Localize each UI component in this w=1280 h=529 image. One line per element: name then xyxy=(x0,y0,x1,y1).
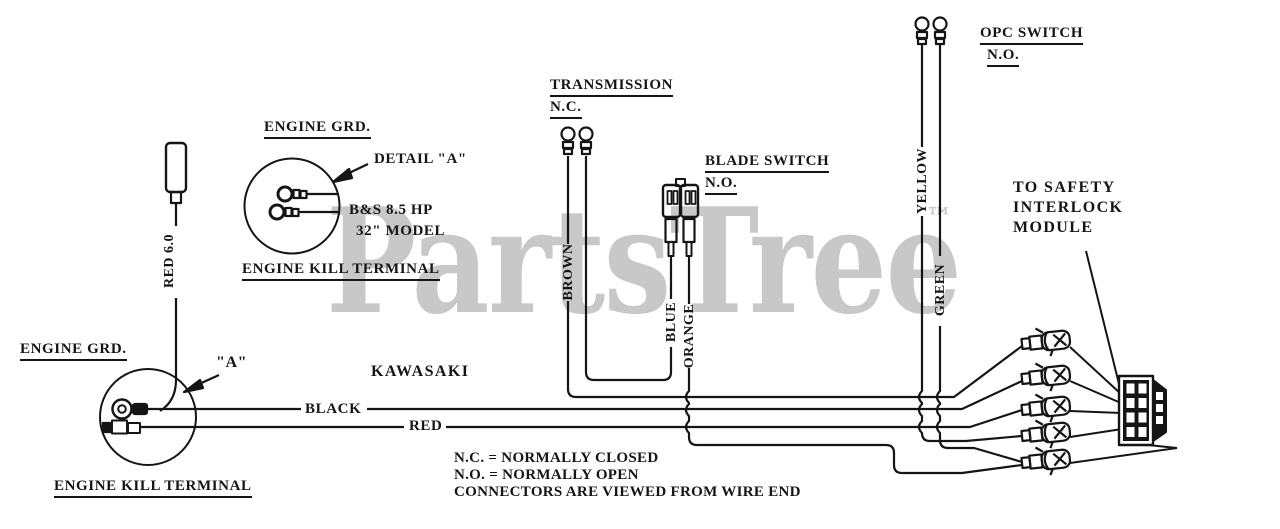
bullet-connector-icon xyxy=(166,143,186,203)
engine-ground-detail-circle xyxy=(245,159,340,254)
transmission-state-label: N.C. xyxy=(550,99,582,119)
blade-switch-state-label: N.O. xyxy=(705,175,737,195)
wire-blue xyxy=(586,156,671,380)
engine-grd-top-label: ENGINE GRD. xyxy=(264,119,371,139)
engine-kill-top-label: ENGINE KILL TERMINAL xyxy=(242,261,440,281)
note-connectors: CONNECTORS ARE VIEWED FROM WIRE END xyxy=(454,484,801,501)
engine-model-label: B&S 8.5 HP xyxy=(349,202,433,219)
wire-label-brown: BROWN xyxy=(561,244,577,301)
interlock-module-icon xyxy=(1119,376,1166,445)
opc-switch-label: OPC SWITCH xyxy=(980,25,1083,45)
deck-model-label: 32" MODEL xyxy=(356,223,445,240)
spade-terminal-icon xyxy=(1021,325,1072,359)
spade-terminal-icon xyxy=(1021,444,1072,478)
red-wire-label: RED xyxy=(409,418,442,435)
blade-switch-label: BLADE SWITCH xyxy=(705,153,829,173)
wiring-diagram: PartsTree ™ xyxy=(0,0,1280,529)
blade-switch-connector-icon xyxy=(663,179,698,256)
a-arrow-icon xyxy=(184,375,219,392)
safety-module-label-3: MODULE xyxy=(1013,219,1093,237)
wire-black xyxy=(147,381,1022,409)
kawasaki-label: KAWASAKI xyxy=(371,363,469,381)
ring-terminal-icon xyxy=(916,18,947,45)
wire-label-blue: BLUE xyxy=(664,302,680,342)
wire-label-red60: RED 6.0 xyxy=(162,234,178,288)
safety-module-label-2: INTERLOCK xyxy=(1013,199,1123,217)
wire-green xyxy=(937,45,1022,462)
wire-yellow xyxy=(919,45,1022,441)
opc-switch-state-label: N.O. xyxy=(987,47,1019,67)
wire-red xyxy=(141,410,1022,427)
note-nc: N.C. = NORMALLY CLOSED xyxy=(454,450,658,467)
wire-label-yellow: YELLOW xyxy=(915,148,931,214)
detail-a-label: DETAIL "A" xyxy=(374,151,467,168)
spade-terminal-icon xyxy=(1021,417,1072,451)
a-callout-label: "A" xyxy=(216,354,247,372)
wire-label-orange: ORANGE xyxy=(682,304,698,368)
engine-grd-bottom-label: ENGINE GRD. xyxy=(20,341,127,361)
note-no: N.O. = NORMALLY OPEN xyxy=(454,467,639,484)
black-wire-label: BLACK xyxy=(305,401,361,418)
spade-terminal-icon xyxy=(1021,360,1072,394)
engine-kill-bottom-label: ENGINE KILL TERMINAL xyxy=(54,478,252,498)
wire-label-green: GREEN xyxy=(933,264,949,316)
wire-brown xyxy=(568,156,1022,397)
transmission-label: TRANSMISSION xyxy=(550,77,673,97)
spade-terminal-icon xyxy=(1021,391,1072,425)
safety-module-label-1: TO SAFETY xyxy=(1013,179,1116,197)
detail-arrow-icon xyxy=(333,164,368,182)
engine-kill-detail-circle xyxy=(100,369,196,465)
ring-terminal-icon xyxy=(562,128,593,155)
